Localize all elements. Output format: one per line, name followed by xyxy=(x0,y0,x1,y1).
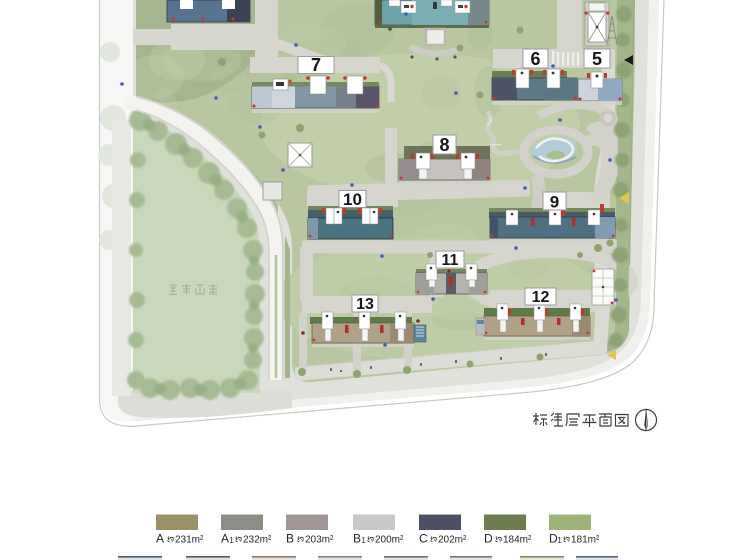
svg-text:D: D xyxy=(484,532,493,546)
svg-text:203m²: 203m² xyxy=(305,535,334,546)
svg-text:11: 11 xyxy=(442,252,459,269)
svg-text:202m²: 202m² xyxy=(438,535,467,546)
svg-text:B: B xyxy=(353,532,361,546)
svg-text:184m²: 184m² xyxy=(503,535,532,546)
svg-text:232m²: 232m² xyxy=(243,535,272,546)
svg-text:7: 7 xyxy=(311,55,321,75)
svg-text:C: C xyxy=(419,532,428,546)
svg-text:6: 6 xyxy=(530,49,540,69)
svg-text:1: 1 xyxy=(229,536,234,545)
svg-text:1: 1 xyxy=(557,536,562,545)
svg-text:5: 5 xyxy=(592,49,602,69)
svg-text:B: B xyxy=(286,532,294,546)
svg-text:200m²: 200m² xyxy=(375,535,404,546)
svg-text:1: 1 xyxy=(361,536,366,545)
svg-text:9: 9 xyxy=(550,193,559,212)
svg-text:A: A xyxy=(221,532,229,546)
svg-text:231m²: 231m² xyxy=(175,535,204,546)
svg-text:12: 12 xyxy=(532,289,550,306)
svg-text:10: 10 xyxy=(343,190,362,209)
svg-text:13: 13 xyxy=(356,296,374,313)
svg-text:181m²: 181m² xyxy=(571,535,600,546)
svg-text:8: 8 xyxy=(439,135,449,155)
svg-text:A: A xyxy=(156,532,164,546)
